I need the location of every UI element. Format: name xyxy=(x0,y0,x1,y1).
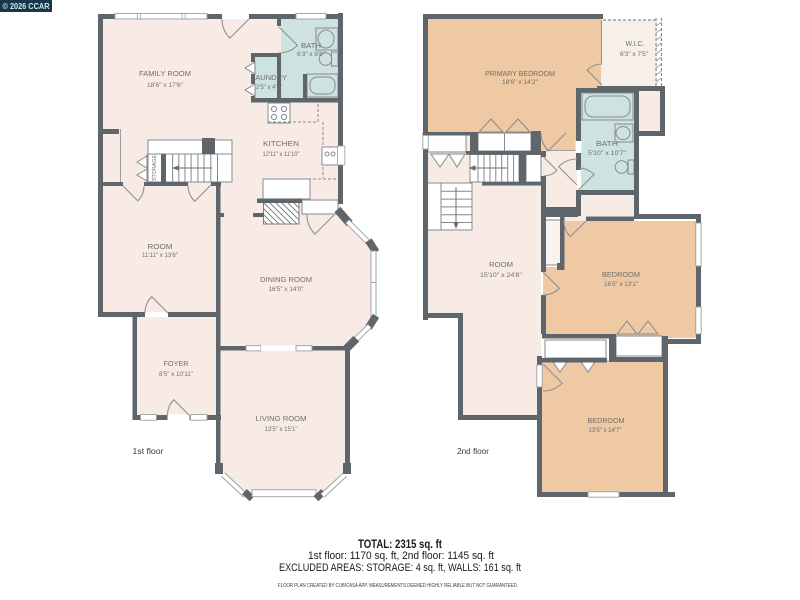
svg-text:8'5" x 10'11": 8'5" x 10'11" xyxy=(159,371,193,378)
svg-text:6'3" x 8'8": 6'3" x 8'8" xyxy=(297,51,325,58)
svg-text:5'10" x 10'7": 5'10" x 10'7" xyxy=(588,150,626,157)
svg-text:PRIMARY BEDROOM: PRIMARY BEDROOM xyxy=(485,69,555,78)
svg-text:BEDROOM: BEDROOM xyxy=(602,270,640,279)
svg-text:LIVING ROOM: LIVING ROOM xyxy=(256,414,307,423)
svg-text:LAUNDRY: LAUNDRY xyxy=(251,73,287,82)
svg-text:6'3" x 7'5": 6'3" x 7'5" xyxy=(620,51,648,58)
svg-text:1st floor: 1170 sq. ft, 2nd fl: 1st floor: 1170 sq. ft, 2nd floor: 1145 … xyxy=(308,550,494,562)
svg-text:ROOM: ROOM xyxy=(148,242,173,251)
svg-text:FLOOR PLAN CREATED BY CUBICASA: FLOOR PLAN CREATED BY CUBICASA APP. MEAS… xyxy=(278,583,518,589)
svg-text:15'10" x 24'8": 15'10" x 24'8" xyxy=(480,272,522,279)
svg-text:11'11" x 13'6": 11'11" x 13'6" xyxy=(142,252,178,259)
svg-text:W.I.C.: W.I.C. xyxy=(626,39,645,48)
svg-text:18'6" x 17'6": 18'6" x 17'6" xyxy=(147,82,183,89)
svg-text:TOTAL: 2315 sq. ft: TOTAL: 2315 sq. ft xyxy=(358,537,442,551)
svg-text:EXCLUDED AREAS: STORAGE: 4 sq.: EXCLUDED AREAS: STORAGE: 4 sq. ft, WALLS… xyxy=(279,562,521,574)
svg-text:DINING ROOM: DINING ROOM xyxy=(260,275,312,284)
svg-text:2'5" x 4'6": 2'5" x 4'6" xyxy=(256,84,282,91)
svg-text:2nd floor: 2nd floor xyxy=(457,446,489,456)
svg-text:16'5" x 13'1": 16'5" x 13'1" xyxy=(604,281,638,288)
svg-text:13'5" x 14'7": 13'5" x 14'7" xyxy=(589,427,622,434)
svg-text:FOYER: FOYER xyxy=(164,359,190,368)
svg-text:12'11" x 11'10": 12'11" x 11'10" xyxy=(263,151,300,158)
svg-text:© 2026 CCAR: © 2026 CCAR xyxy=(3,2,50,11)
svg-text:FAMILY ROOM: FAMILY ROOM xyxy=(139,69,191,78)
svg-text:STORAGE: STORAGE xyxy=(152,154,158,181)
svg-text:BEDROOM: BEDROOM xyxy=(588,416,625,425)
svg-text:13'5" x 15'1": 13'5" x 15'1" xyxy=(265,426,298,433)
svg-text:16'5" x 14'0": 16'5" x 14'0" xyxy=(269,286,304,293)
svg-text:BATH: BATH xyxy=(301,41,321,50)
svg-text:1st floor: 1st floor xyxy=(133,446,164,456)
svg-text:KITCHEN: KITCHEN xyxy=(263,139,299,148)
svg-text:BATH: BATH xyxy=(596,139,618,148)
svg-text:ROOM: ROOM xyxy=(489,260,513,269)
svg-text:18'6" x 14'2": 18'6" x 14'2" xyxy=(502,79,538,86)
